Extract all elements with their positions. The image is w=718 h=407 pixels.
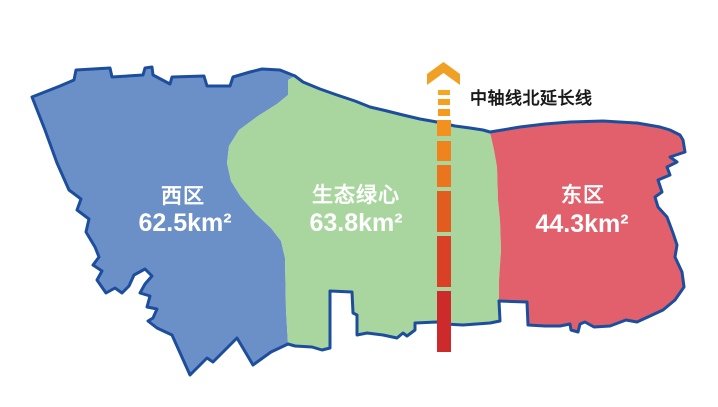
green-heart-area-label: 63.8km² bbox=[309, 209, 402, 237]
east-district-area-label: 44.3km² bbox=[535, 210, 628, 238]
axis-dash bbox=[438, 90, 450, 95]
axis-dash bbox=[437, 141, 451, 161]
axis-dash bbox=[437, 165, 451, 187]
axis-dash bbox=[437, 120, 451, 136]
district-map-figure: 西区 62.5km² 生态绿心 63.8km² 东区 44.3km² 中轴线北延… bbox=[0, 0, 718, 407]
axis-dash bbox=[437, 191, 451, 232]
axis-dash bbox=[437, 236, 451, 287]
west-district-name-label: 西区 bbox=[161, 185, 205, 208]
west-district-area-label: 62.5km² bbox=[138, 209, 231, 237]
district-map-canvas: 西区 62.5km² 生态绿心 63.8km² 东区 44.3km² 中轴线北延… bbox=[0, 0, 718, 407]
axis-dash bbox=[438, 109, 450, 116]
axis-dash bbox=[437, 291, 451, 352]
central-axis-label: 中轴线北延长线 bbox=[470, 88, 593, 108]
east-district-name-label: 东区 bbox=[561, 183, 605, 207]
axis-arrow-icon bbox=[427, 62, 460, 85]
green-heart-name-label: 生态绿心 bbox=[312, 183, 400, 207]
axis-dash bbox=[438, 99, 450, 105]
